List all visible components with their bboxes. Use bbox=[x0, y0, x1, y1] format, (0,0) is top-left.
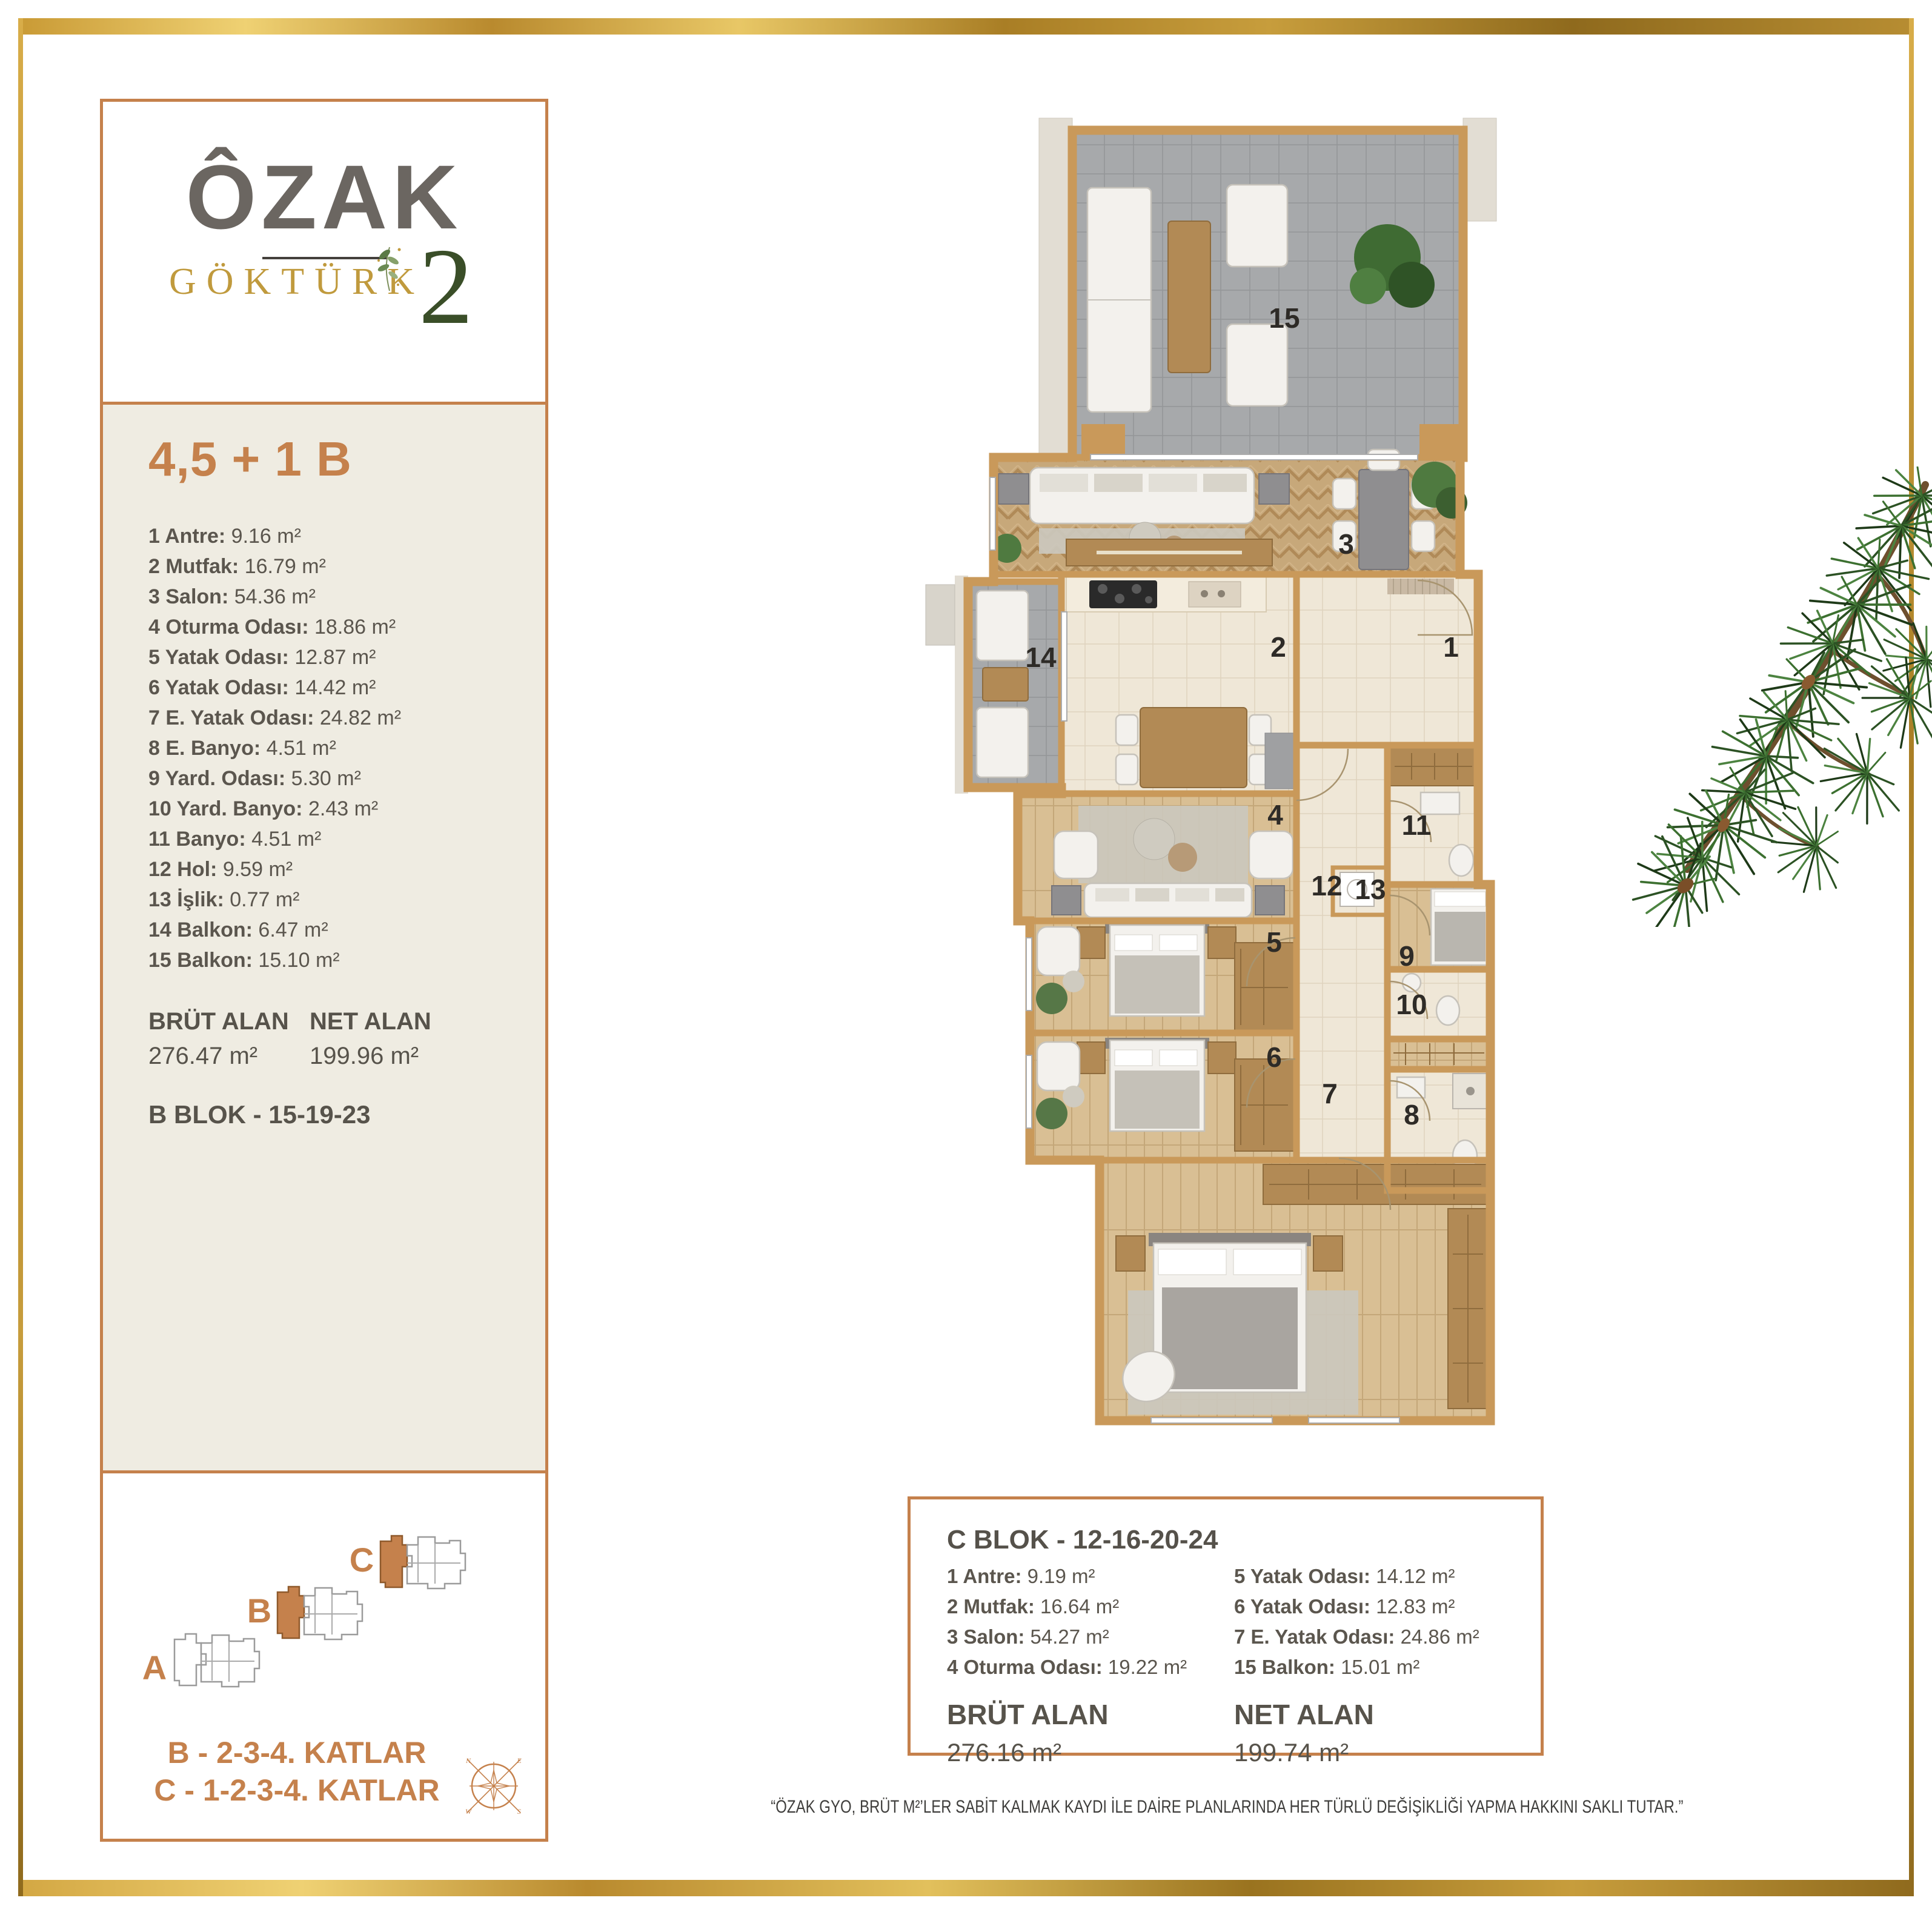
room-list-item: 6 Yatak Odası: 14.42 m² bbox=[148, 672, 545, 703]
logo-divider bbox=[262, 257, 387, 259]
plan-room-number: 5 bbox=[1266, 926, 1282, 958]
room-list-item: 10 Yard. Banyo: 2.43 m² bbox=[148, 794, 545, 824]
plan-room-number: 3 bbox=[1338, 528, 1354, 560]
svg-text:S: S bbox=[517, 1807, 521, 1816]
plan-room-number: 6 bbox=[1266, 1041, 1282, 1073]
room-list-item: 1 Antre: 9.16 m² bbox=[148, 521, 545, 551]
room-list-item: 9 Yard. Odası: 5.30 m² bbox=[148, 763, 545, 794]
room-list-item: 13 İşlik: 0.77 m² bbox=[148, 885, 545, 915]
building-b-label: B bbox=[247, 1592, 271, 1630]
brochure-page: ÔZAK GÖKTÜRK2 4,5 + 1 B 1 Antre: 9.16 m²… bbox=[0, 0, 1932, 1932]
building-a-label: A bbox=[142, 1648, 167, 1687]
room-list-item: 5 Yatak Odası: 12.87 m² bbox=[148, 642, 545, 672]
plan-room-number: 12 bbox=[1311, 870, 1342, 901]
floors-c-line: C - 1-2-3-4. KATLAR bbox=[109, 1771, 485, 1809]
c-brut-label: BRÜT ALAN bbox=[947, 1698, 1234, 1731]
marble-pier bbox=[1039, 118, 1072, 460]
room-list-item: 12 Hol: 9.59 m² bbox=[148, 854, 545, 885]
plan-room-number: 2 bbox=[1270, 631, 1286, 663]
floors-note: B - 2-3-4. KATLAR C - 1-2-3-4. KATLAR bbox=[109, 1734, 485, 1809]
gold-frame-left bbox=[18, 18, 23, 1896]
c-net-value: 199.74 m² bbox=[1234, 1738, 1521, 1767]
svg-text:N: N bbox=[465, 1756, 471, 1765]
plan-room-number: 11 bbox=[1402, 809, 1432, 841]
compass-icon: N E W S bbox=[463, 1756, 524, 1816]
unit-type-title: 4,5 + 1 B bbox=[148, 431, 545, 487]
plan-room-number: 13 bbox=[1355, 874, 1386, 905]
c-blok-item: 5 Yatak Odası: 14.12 m² bbox=[1234, 1561, 1479, 1592]
c-blok-item: 2 Mutfak: 16.64 m² bbox=[947, 1592, 1234, 1622]
area-summary: BRÜT ALAN276.47 m² NET ALAN199.96 m² bbox=[148, 1008, 545, 1070]
pine-branch-decoration bbox=[1587, 466, 1932, 927]
hall-floor bbox=[1296, 745, 1387, 1160]
legal-disclaimer: “ÖZAK GYO, BRÜT M²’LER SABİT KALMAK KAYD… bbox=[651, 1797, 1802, 1817]
gold-frame-right bbox=[1909, 18, 1914, 1896]
room-list-item: 4 Oturma Odası: 18.86 m² bbox=[148, 612, 545, 642]
brand-logo: ÔZAK bbox=[103, 151, 545, 242]
room-list-item: 8 E. Banyo: 4.51 m² bbox=[148, 733, 545, 763]
room-list-item: 3 Salon: 54.36 m² bbox=[148, 582, 545, 612]
svg-text:E: E bbox=[516, 1756, 522, 1765]
building-c-label: C bbox=[350, 1541, 374, 1579]
c-blok-panel: C BLOK - 12-16-20-24 1 Antre: 9.19 m² 2 … bbox=[908, 1496, 1544, 1756]
project-logo: GÖKTÜRK2 bbox=[169, 261, 479, 308]
building-c-footprint bbox=[380, 1536, 465, 1588]
plan-room-number: 15 bbox=[1269, 302, 1300, 334]
plan-room-number: 8 bbox=[1404, 1099, 1419, 1130]
room-list-item: 7 E. Yatak Odası: 24.82 m² bbox=[148, 703, 545, 733]
plan-room-number: 10 bbox=[1396, 989, 1427, 1020]
c-blok-item: 3 Salon: 54.27 m² bbox=[947, 1622, 1234, 1652]
net-alan-value: 199.96 m² bbox=[310, 1043, 471, 1070]
plan-room-number: 7 bbox=[1322, 1078, 1338, 1109]
room-list-item: 15 Balkon: 15.10 m² bbox=[148, 945, 545, 975]
c-blok-item: 6 Yatak Odası: 12.83 m² bbox=[1234, 1592, 1479, 1622]
room-list-item: 2 Mutfak: 16.79 m² bbox=[148, 551, 545, 582]
c-brut-value: 276.16 m² bbox=[947, 1738, 1234, 1767]
plan-room-number: 4 bbox=[1267, 799, 1283, 831]
plan-room-number: 9 bbox=[1399, 940, 1415, 972]
c-net-label: NET ALAN bbox=[1234, 1698, 1521, 1731]
c-blok-title: C BLOK - 12-16-20-24 bbox=[947, 1525, 1541, 1555]
logo-section: ÔZAK GÖKTÜRK2 bbox=[103, 102, 545, 402]
room-list-item: 14 Balkon: 6.47 m² bbox=[148, 915, 545, 945]
brut-alan-value: 276.47 m² bbox=[148, 1043, 310, 1070]
floor-plan: 15 3 2 1 14 11 4 12 13 5 9 10 6 7 8 bbox=[921, 109, 1515, 1430]
block-units-line: B BLOK - 15-19-23 bbox=[148, 1100, 545, 1129]
brut-alan-label: BRÜT ALAN bbox=[148, 1008, 310, 1035]
c-blok-item: 15 Balkon: 15.01 m² bbox=[1234, 1652, 1479, 1682]
c-blok-item: 1 Antre: 9.19 m² bbox=[947, 1561, 1234, 1592]
project-number: 2 bbox=[419, 226, 473, 347]
building-b-footprint bbox=[277, 1587, 362, 1639]
floors-b-line: B - 2-3-4. KATLAR bbox=[109, 1734, 485, 1771]
svg-text:W: W bbox=[465, 1807, 472, 1816]
marble-pier bbox=[1463, 118, 1496, 221]
c-blok-item: 4 Oturma Odası: 19.22 m² bbox=[947, 1652, 1234, 1682]
net-alan-label: NET ALAN bbox=[310, 1008, 471, 1035]
gold-frame-top bbox=[18, 18, 1914, 35]
plan-room-number: 1 bbox=[1443, 631, 1459, 663]
plan-room-number: 14 bbox=[1025, 642, 1057, 673]
leaf-decoration-icon bbox=[371, 240, 414, 294]
building-a-footprint bbox=[174, 1634, 259, 1687]
gold-frame-bottom bbox=[18, 1880, 1914, 1896]
unit-info-panel: 4,5 + 1 B 1 Antre: 9.16 m² 2 Mutfak: 16.… bbox=[103, 402, 545, 1473]
siteplan-map: A B C bbox=[109, 1487, 533, 1742]
room-list-item: 11 Banyo: 4.51 m² bbox=[148, 824, 545, 854]
c-blok-item: 7 E. Yatak Odası: 24.86 m² bbox=[1234, 1622, 1479, 1652]
